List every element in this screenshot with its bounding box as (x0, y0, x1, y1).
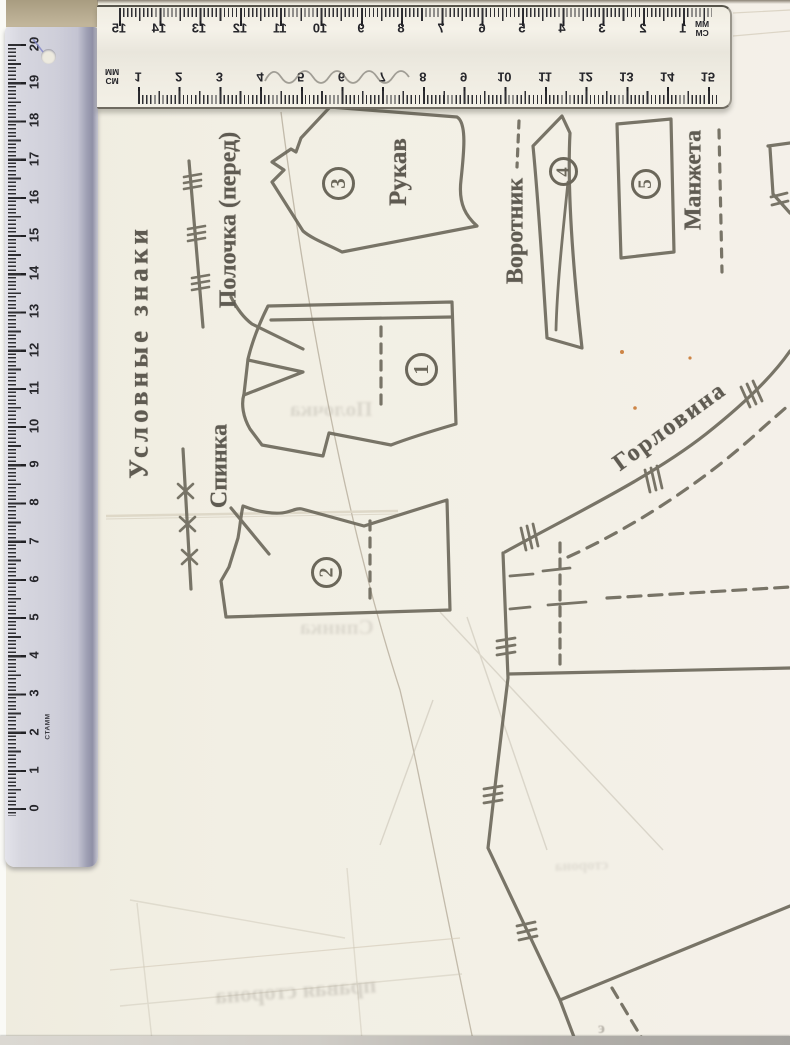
legend-title: Условные знаки (124, 225, 155, 479)
label-cuff: Манжета (681, 130, 708, 230)
piece-number-text: 4 (553, 167, 575, 177)
scan-edge-line (97, 0, 790, 4)
label-collar: Воротник (503, 178, 530, 284)
pen-scribble (97, 7, 730, 107)
label-sleeve: Рукав (385, 138, 413, 206)
showthrough-text: Спинка (300, 615, 374, 640)
scanned-sewing-pattern-sheet: Полочка Спинка правая сторона сторона э … (0, 0, 790, 1045)
piece-number-text: 2 (315, 568, 338, 578)
label-back: Спинка (207, 424, 234, 508)
horizontal-ruler: 151413121110987654321 123456789101112131… (97, 5, 732, 109)
piece-number-text: 3 (326, 178, 351, 189)
piece-number-2: 2 (311, 557, 342, 588)
showthrough-text: Полочка (290, 397, 372, 422)
piece-number-text: 1 (409, 364, 434, 375)
legend-line-back (183, 449, 191, 589)
piece-number-4: 4 (549, 157, 578, 186)
piece-number-text: 5 (635, 179, 657, 189)
piece-sleeve-outline (272, 107, 477, 252)
pen-mark (5, 27, 98, 867)
bottom-scan-strip (0, 1036, 790, 1045)
piece-number-1: 1 (405, 353, 438, 386)
vertical-ruler: 20191817161514131211109876543210 СТАММ (5, 27, 98, 867)
scan-edge-strip (0, 0, 98, 27)
piece-back-outline (221, 500, 450, 617)
piece-number-3: 3 (322, 167, 355, 200)
label-front: Полочка (перед) (216, 132, 243, 308)
showthrough-text: сторона (555, 857, 609, 876)
piece-number-5: 5 (631, 169, 661, 199)
